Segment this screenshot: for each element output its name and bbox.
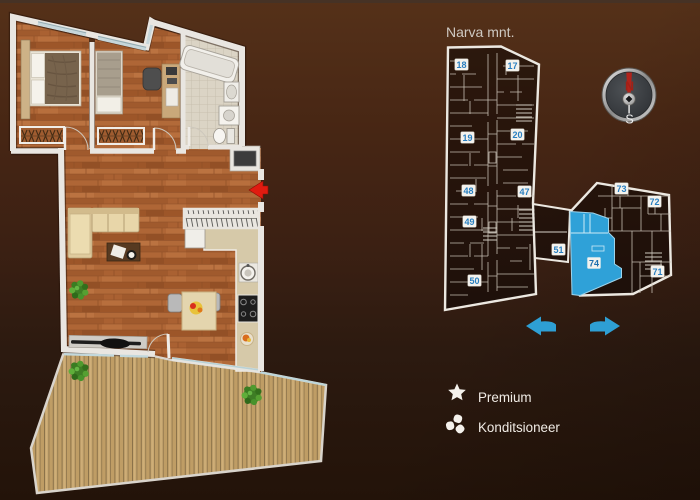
svg-text:48: 48 (463, 186, 473, 196)
svg-text:73: 73 (616, 184, 626, 194)
svg-text:74: 74 (589, 259, 599, 269)
svg-text:17: 17 (507, 61, 517, 71)
svg-text:72: 72 (649, 197, 659, 207)
svg-text:71: 71 (652, 267, 662, 277)
svg-text:47: 47 (519, 187, 529, 197)
svg-text:Premium: Premium (478, 390, 532, 405)
svg-text:S: S (625, 113, 633, 127)
svg-text:51: 51 (553, 245, 563, 255)
svg-text:Konditsioneer: Konditsioneer (478, 420, 560, 435)
svg-text:18: 18 (456, 60, 466, 70)
svg-text:50: 50 (469, 276, 479, 286)
svg-text:49: 49 (464, 217, 474, 227)
svg-text:19: 19 (462, 133, 472, 143)
svg-text:Narva mnt.: Narva mnt. (446, 24, 514, 40)
svg-text:N: N (625, 80, 634, 94)
svg-text:20: 20 (512, 130, 522, 140)
